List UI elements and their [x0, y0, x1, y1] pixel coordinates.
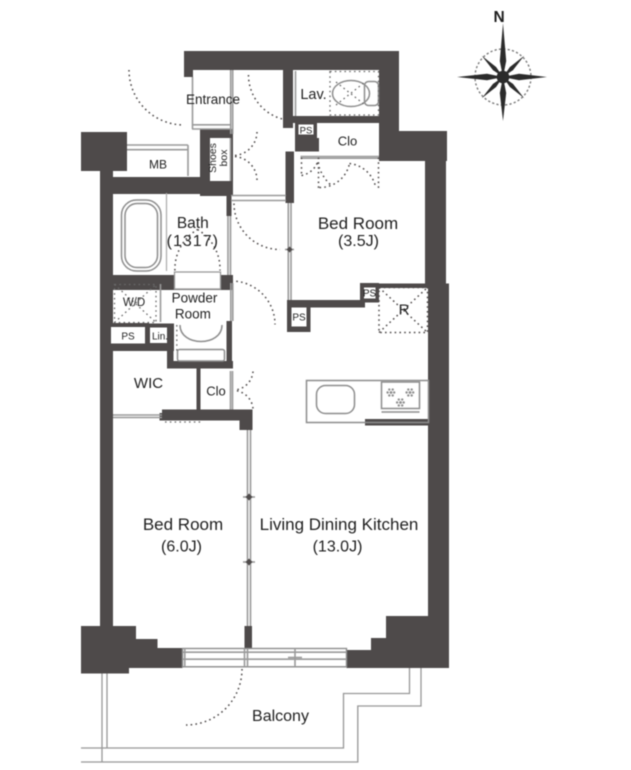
svg-text:Lav.: Lav.: [300, 87, 326, 103]
svg-text:(1317): (1317): [167, 233, 219, 250]
svg-text:Entrance: Entrance: [186, 92, 240, 107]
svg-text:MB: MB: [149, 158, 167, 172]
svg-text:Bath: Bath: [177, 215, 209, 232]
svg-text:N: N: [494, 9, 505, 26]
svg-text:Clo: Clo: [338, 134, 358, 149]
svg-text:Lin.: Lin.: [152, 332, 168, 343]
svg-text:PS: PS: [300, 126, 313, 137]
svg-text:Clo: Clo: [206, 384, 226, 399]
svg-text:(3.5J): (3.5J): [338, 233, 379, 250]
svg-text:PS: PS: [363, 289, 377, 300]
svg-text:(13.0J): (13.0J): [313, 539, 363, 556]
svg-text:Balcony: Balcony: [252, 708, 309, 725]
svg-text:Room: Room: [175, 307, 211, 322]
svg-text:Powder: Powder: [172, 291, 218, 306]
svg-text:W/D: W/D: [123, 297, 145, 309]
svg-text:(6.0J): (6.0J): [161, 539, 202, 556]
svg-text:box: box: [218, 149, 230, 167]
svg-text:R: R: [399, 302, 410, 319]
svg-text:PS: PS: [121, 332, 135, 343]
svg-text:Bed Room: Bed Room: [143, 515, 223, 534]
svg-text:Living Dining Kitchen: Living Dining Kitchen: [260, 515, 419, 534]
svg-text:PS: PS: [292, 313, 306, 324]
svg-text:WIC: WIC: [134, 375, 163, 392]
svg-text:Bed Room: Bed Room: [318, 214, 398, 233]
